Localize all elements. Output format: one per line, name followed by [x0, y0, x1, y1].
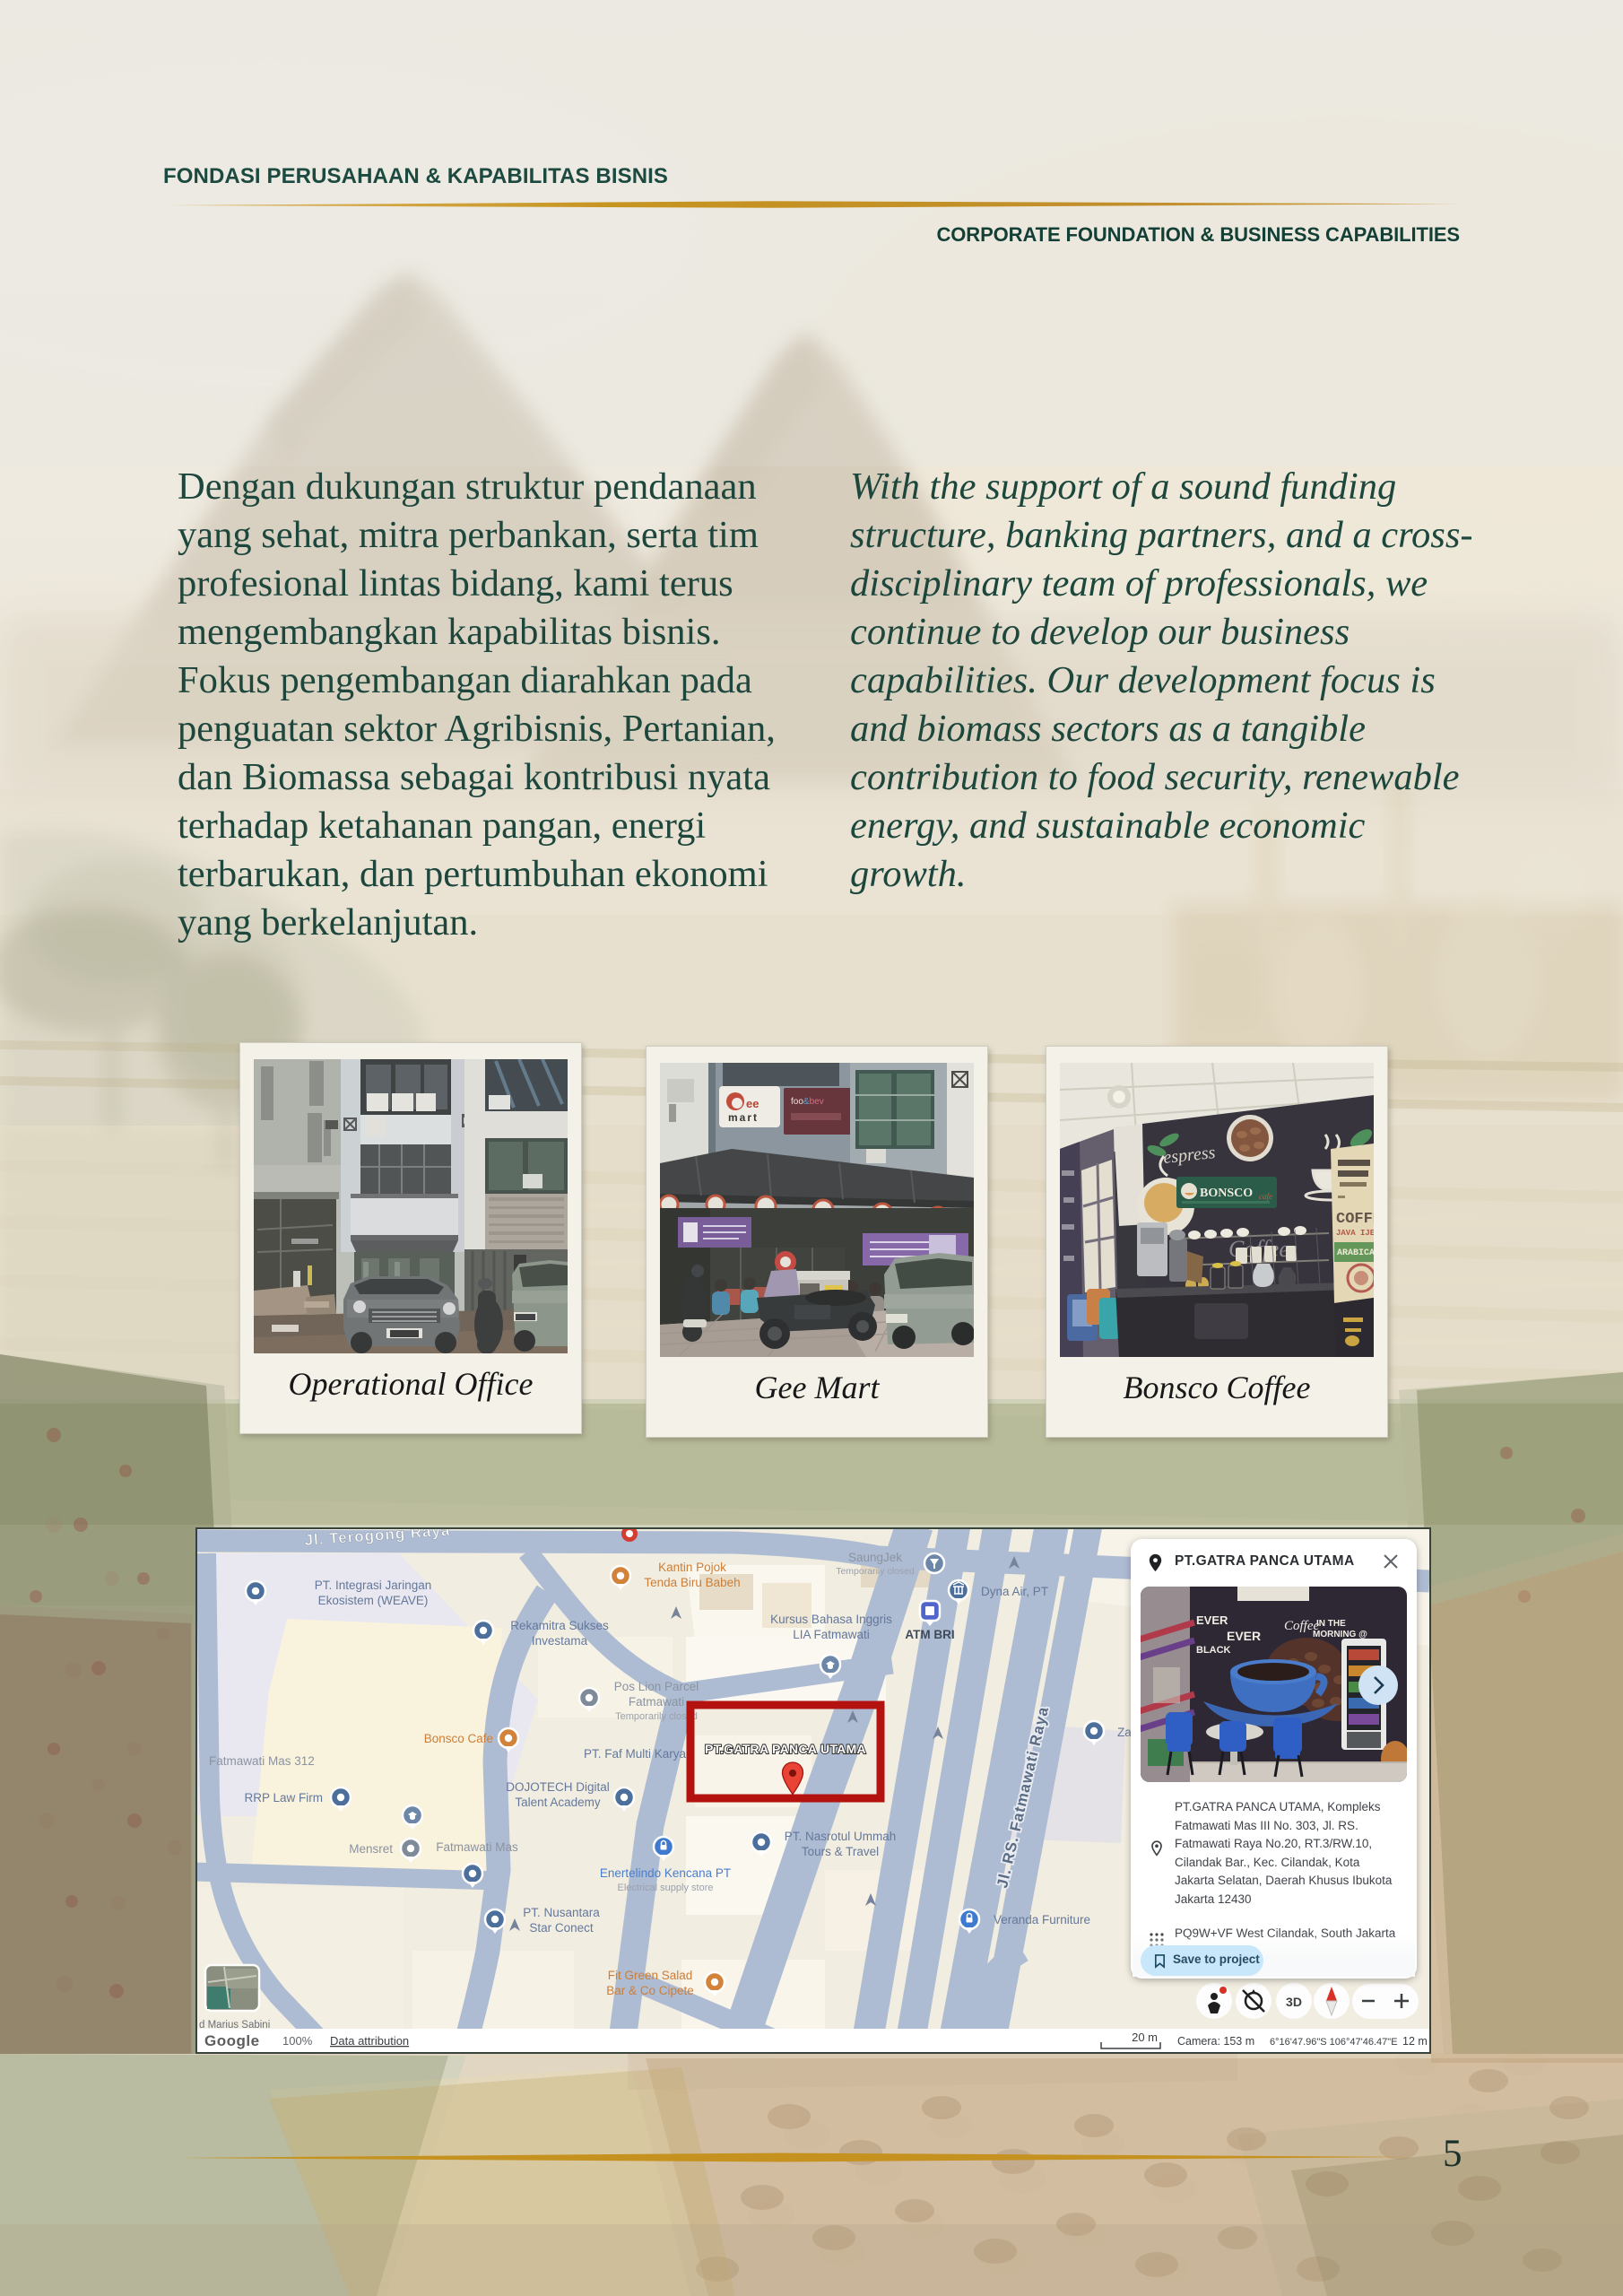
svg-text:100%: 100% — [282, 2034, 313, 2048]
svg-text:Tours & Travel: Tours & Travel — [802, 1845, 879, 1858]
svg-text:12 m: 12 m — [1402, 2035, 1428, 2048]
svg-text:EVER: EVER — [1196, 1613, 1228, 1627]
svg-text:Star Conect: Star Conect — [529, 1921, 594, 1935]
svg-text:Investama: Investama — [532, 1634, 588, 1648]
svg-text:DOJOTECH Digital: DOJOTECH Digital — [506, 1780, 610, 1794]
svg-text:SaungJek: SaungJek — [848, 1551, 902, 1564]
svg-text:PT.GATRA PANCA UTAMA: PT.GATRA PANCA UTAMA — [705, 1742, 866, 1756]
svg-text:PT. Nasrotul Ummah: PT. Nasrotul Ummah — [785, 1830, 897, 1843]
svg-text:Pos Lion Parcel: Pos Lion Parcel — [614, 1680, 699, 1693]
svg-text:RRP Law Firm: RRP Law Firm — [244, 1791, 323, 1805]
svg-text:Talent Academy: Talent Academy — [515, 1796, 601, 1809]
svg-text:Bar & Co Cipete: Bar & Co Cipete — [606, 1984, 694, 1997]
svg-text:Veranda Furniture: Veranda Furniture — [994, 1913, 1090, 1926]
svg-text:Fit Green Salad: Fit Green Salad — [608, 1969, 693, 1982]
svg-text:Temporarily closed: Temporarily closed — [615, 1711, 698, 1722]
svg-text:PT. Faf Multi Karya: PT. Faf Multi Karya — [584, 1747, 687, 1761]
svg-text:Tenda Biru Babeh: Tenda Biru Babeh — [644, 1576, 740, 1589]
svg-text:Ekosistem (WEAVE): Ekosistem (WEAVE) — [318, 1594, 429, 1607]
svg-text:PT. Integrasi Jaringan: PT. Integrasi Jaringan — [315, 1578, 432, 1592]
svg-text:MORNING @: MORNING @ — [1313, 1630, 1367, 1639]
svg-text:Fatmawati: Fatmawati — [629, 1695, 684, 1709]
svg-text:BLACK: BLACK — [1196, 1645, 1231, 1656]
svg-text:Electrical supply store: Electrical supply store — [618, 1883, 714, 1893]
svg-text:EVER: EVER — [1227, 1629, 1261, 1643]
svg-text:Google: Google — [204, 2032, 260, 2049]
svg-text:Kantin Pojok: Kantin Pojok — [658, 1561, 726, 1574]
svg-text:Dyna Air, PT: Dyna Air, PT — [981, 1585, 1048, 1598]
svg-text:IN THE: IN THE — [1316, 1619, 1346, 1629]
svg-text:Data attribution: Data attribution — [330, 2034, 409, 2048]
svg-text:Za: Za — [1117, 1726, 1132, 1739]
svg-text:Fatmawati Mas 312: Fatmawati Mas 312 — [209, 1754, 315, 1768]
svg-text:Bonsco Cafe: Bonsco Cafe — [424, 1732, 493, 1745]
svg-text:Mensret: Mensret — [349, 1842, 393, 1856]
svg-text:6°16'47.96"S 106°47'46.47"E: 6°16'47.96"S 106°47'46.47"E — [1270, 2037, 1398, 2048]
svg-text:ATM BRI: ATM BRI — [905, 1628, 954, 1641]
svg-text:LIA Fatmawati: LIA Fatmawati — [793, 1628, 870, 1641]
svg-text:Enertelindo Kencana PT: Enertelindo Kencana PT — [600, 1866, 731, 1880]
svg-text:PT. Nusantara: PT. Nusantara — [523, 1906, 600, 1919]
svg-text:20 m: 20 m — [1132, 2031, 1158, 2044]
svg-text:Kursus Bahasa Inggris: Kursus Bahasa Inggris — [770, 1613, 892, 1626]
svg-text:Camera: 153 m: Camera: 153 m — [1177, 2035, 1254, 2048]
svg-text:Temporarily closed: Temporarily closed — [836, 1566, 915, 1577]
svg-text:3D: 3D — [1286, 1995, 1302, 2009]
svg-text:Rekamitra Sukses: Rekamitra Sukses — [510, 1619, 609, 1632]
svg-text:Fatmawati Mas: Fatmawati Mas — [436, 1840, 518, 1854]
